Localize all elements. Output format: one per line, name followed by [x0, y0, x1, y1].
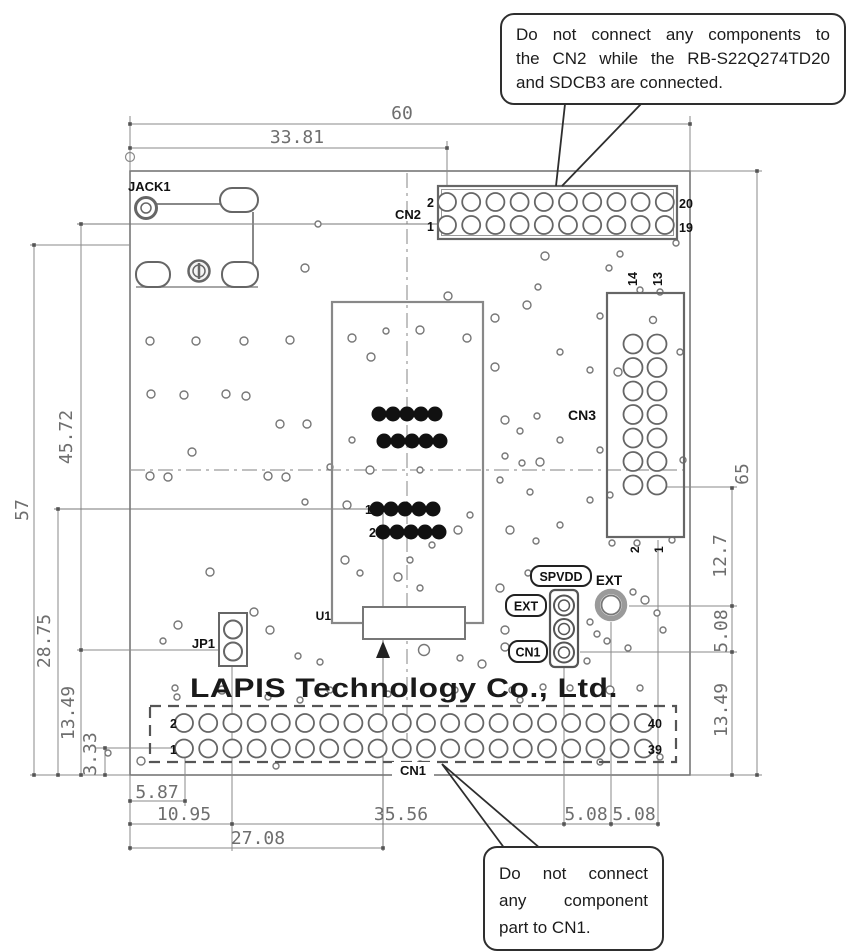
dim-bottom-1095: 10.95: [157, 804, 211, 825]
silkscreen-company-text: LAPIS Technology Co., Ltd.: [190, 673, 618, 703]
cn3-pin1-label: 1: [652, 546, 666, 553]
cn2-note-line2: the CN2 while the RB-S22Q274TD20: [516, 49, 830, 68]
dim-left-4572: 45.72: [56, 410, 77, 464]
cn1-note-line3: part to CN1.: [499, 918, 591, 937]
cn1-note-line1: Do not connect: [499, 864, 648, 883]
jp1-header: [219, 613, 247, 666]
dim-bottom-3556: 35.56: [374, 804, 428, 825]
dim-bottom-587: 5.87: [135, 782, 178, 803]
ext-net-label: EXT: [514, 600, 539, 614]
cn1-note-line2: any component: [499, 891, 648, 910]
cn2-note-line1: Do not connect any components to: [516, 25, 830, 44]
power-header: [550, 590, 578, 667]
u1-row1-label: 1: [365, 503, 372, 517]
jp1-label: JP1: [192, 636, 215, 651]
cn3-pin2-label: 2: [628, 546, 642, 553]
cn2-pin1-label: 1: [427, 220, 434, 234]
jack1-label: JACK1: [128, 179, 171, 194]
cn2-pin20-label: 20: [679, 197, 693, 211]
cn2-note-line3: and SDCB3 are connected.: [516, 73, 723, 92]
spvdd-net-label: SPVDD: [539, 570, 582, 584]
cn1-warning-callout: Do not connect any component part to CN1…: [483, 846, 664, 951]
cn3-pin13-label: 13: [651, 272, 665, 286]
u1-label: U1: [316, 609, 332, 623]
cn1-pin40-label: 40: [648, 717, 662, 731]
ext-label: EXT: [596, 573, 623, 588]
dim-right-total: 65: [732, 463, 753, 485]
cn2-pin2-label: 2: [427, 196, 434, 210]
dim-right-508: 5.08: [711, 609, 732, 652]
u1-row2-label: 2: [369, 526, 376, 540]
dim-left-total: 57: [12, 499, 33, 521]
dim-width-cn2: 33.81: [270, 127, 324, 148]
dim-left-1349: 13.49: [58, 686, 79, 740]
cn1-net-label: CN1: [515, 646, 540, 660]
pcb-dimension-drawing: JACK1 CN2 2 1 20 19 CN3 14 13 2 1 U1 1 2…: [0, 0, 850, 951]
cn1-pin1-label: 1: [170, 743, 177, 757]
u1-bottom-part: [363, 607, 465, 639]
board-drawing-svg: JACK1 CN2 2 1 20 19 CN3 14 13 2 1 U1 1 2…: [0, 0, 850, 951]
cn1-pin2-label: 2: [170, 717, 177, 731]
cn1-label: CN1: [400, 763, 426, 778]
dim-right-127: 12.7: [710, 534, 731, 577]
cn2-pin19-label: 19: [679, 221, 693, 235]
cn2-warning-callout: Do not connect any components to the CN2…: [500, 13, 846, 105]
cn2-label: CN2: [395, 207, 421, 222]
dim-bottom-2708: 27.08: [231, 828, 285, 849]
dim-left-2875: 28.75: [34, 614, 55, 668]
dim-left-333: 3.33: [80, 732, 101, 775]
cn1-pin39-label: 39: [648, 743, 662, 757]
dim-width-total: 60: [391, 103, 413, 124]
dim-right-1349: 13.49: [711, 683, 732, 737]
dim-bottom-508a: 5.08: [564, 804, 607, 825]
cn3-pin14-label: 14: [626, 272, 640, 286]
dim-bottom-508b: 5.08: [612, 804, 655, 825]
cn3-label: CN3: [568, 407, 596, 423]
